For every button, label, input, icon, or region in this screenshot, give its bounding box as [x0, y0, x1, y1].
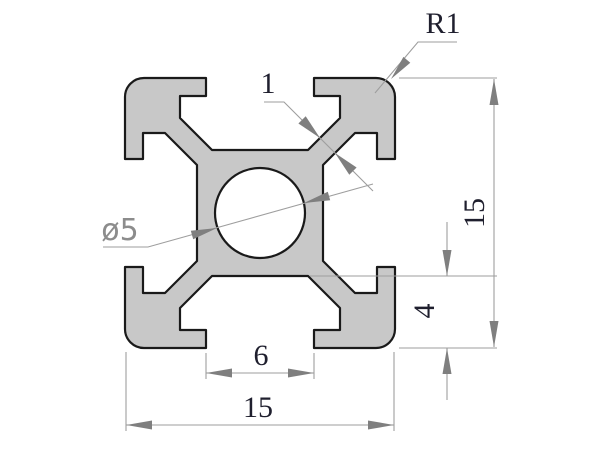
- slot-opening-label: 6: [254, 339, 269, 372]
- hole-diameter-label: ø5: [101, 213, 138, 248]
- center-hole: [215, 168, 305, 258]
- arrowhead: [126, 421, 152, 430]
- overall-width-label: 15: [243, 391, 273, 424]
- arrowhead: [206, 369, 232, 378]
- arrowhead: [490, 321, 499, 347]
- arrowhead: [490, 79, 499, 105]
- arrowhead: [368, 421, 394, 430]
- wall-thickness-label: 1: [261, 67, 276, 100]
- slot-depth-label: 4: [408, 304, 441, 319]
- dimension-corner-radius: R1: [375, 7, 461, 93]
- corner-radius-label: R1: [425, 7, 460, 40]
- arrowhead: [443, 250, 452, 276]
- technical-drawing-canvas: R1 1 ø5 15 4 6: [0, 0, 600, 450]
- technical-drawing-page: R1 1 ø5 15 4 6: [0, 0, 600, 450]
- dimension-slot-opening: 6: [206, 339, 314, 379]
- extrusion-profile: [125, 78, 395, 348]
- arrowhead: [443, 348, 452, 374]
- dimension-slot-depth: 4: [310, 222, 497, 400]
- arrowhead: [391, 57, 410, 79]
- overall-height-label: 15: [458, 198, 491, 228]
- arrowhead: [288, 369, 314, 378]
